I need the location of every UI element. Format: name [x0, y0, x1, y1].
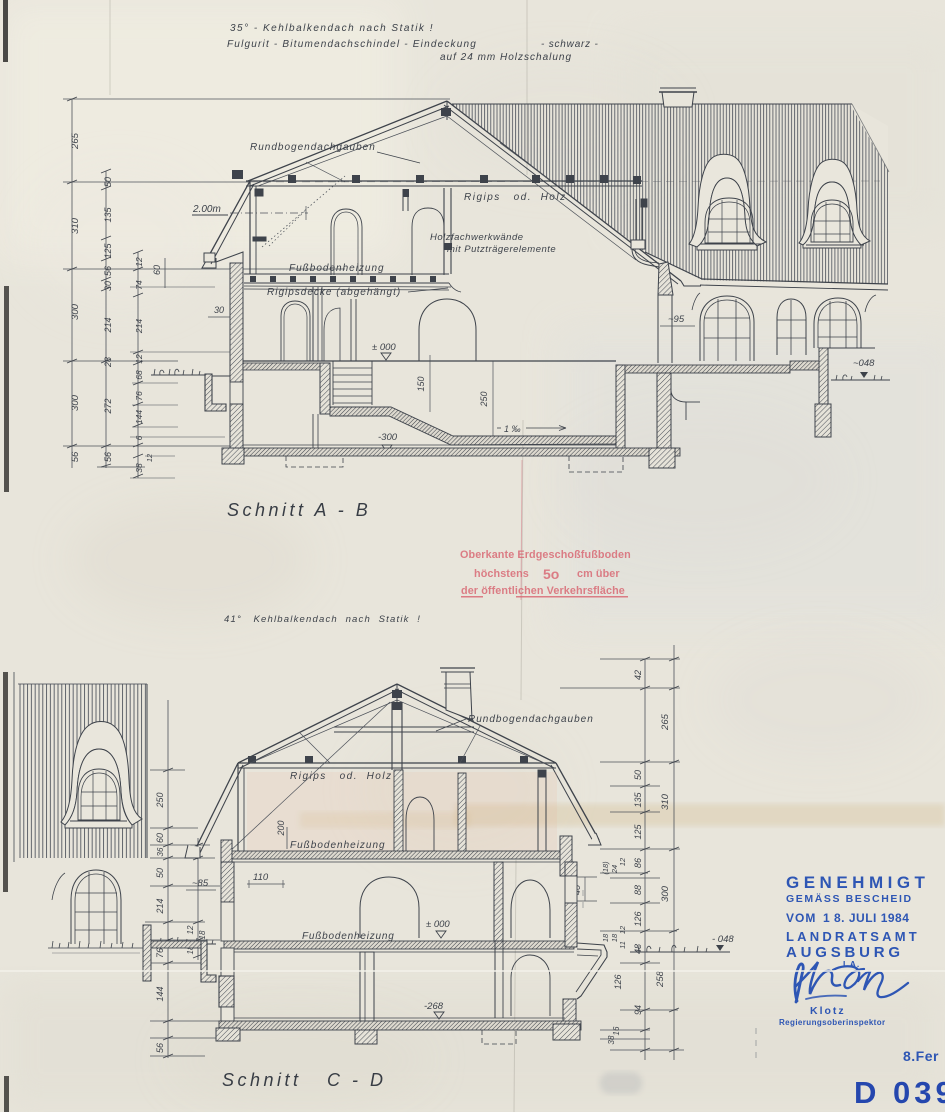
svg-text:Rigipsdecke (abgehängt): Rigipsdecke (abgehängt) — [267, 287, 401, 298]
svg-text:18: 18 — [198, 930, 207, 939]
svg-text:~95: ~95 — [668, 314, 685, 325]
svg-text:42: 42 — [633, 670, 643, 680]
svg-text:auf 24 mm Holzschalung: auf 24 mm Holzschalung — [440, 52, 572, 63]
svg-text:30: 30 — [214, 305, 224, 315]
svg-text:60: 60 — [155, 833, 165, 843]
svg-text:1 ‰: 1 ‰ — [504, 424, 521, 434]
svg-text:Rundbogendachgauben: Rundbogendachgauben — [250, 142, 376, 153]
svg-text:56: 56 — [103, 452, 113, 462]
svg-text:125: 125 — [103, 243, 113, 259]
svg-text:76: 76 — [134, 391, 144, 401]
svg-text:GENEHMIGT: GENEHMIGT — [786, 873, 929, 892]
svg-text:214: 214 — [134, 319, 144, 334]
svg-text:Fußbodenheizung: Fußbodenheizung — [290, 840, 386, 851]
svg-text:300: 300 — [660, 885, 671, 902]
svg-text:2.00m: 2.00m — [192, 204, 221, 215]
svg-text:Oberkante Erdgeschoßfußboden: Oberkante Erdgeschoßfußboden — [460, 549, 631, 561]
svg-text:56: 56 — [103, 266, 113, 276]
svg-text:150: 150 — [416, 376, 426, 391]
svg-text:48: 48 — [633, 944, 643, 954]
svg-text:± 000: ± 000 — [426, 919, 450, 930]
svg-text:VOM: VOM — [786, 911, 816, 925]
svg-text:214: 214 — [103, 317, 113, 333]
svg-text:300: 300 — [70, 394, 81, 411]
svg-text:38: 38 — [134, 463, 144, 473]
svg-text:214: 214 — [155, 898, 165, 914]
svg-text:310: 310 — [660, 793, 671, 810]
svg-text:(18): (18) — [601, 861, 610, 875]
svg-text:1 8. JULI 1984: 1 8. JULI 1984 — [823, 911, 909, 925]
svg-text:Rigips od. Holz: Rigips od. Holz — [464, 192, 567, 203]
svg-text:76: 76 — [155, 948, 165, 958]
svg-text:~85: ~85 — [192, 878, 209, 889]
svg-text:68: 68 — [134, 370, 144, 380]
svg-text:60: 60 — [152, 265, 162, 275]
svg-text:310: 310 — [70, 217, 81, 234]
svg-text:258: 258 — [655, 970, 666, 988]
svg-text:12: 12 — [186, 925, 195, 934]
svg-text:135: 135 — [633, 792, 643, 808]
svg-text:41° Kehlbalkendach nach St: 41° Kehlbalkendach nach Statik ! — [224, 614, 421, 625]
svg-text:12: 12 — [145, 453, 154, 462]
svg-text:86: 86 — [633, 858, 643, 868]
svg-text:88: 88 — [633, 885, 643, 895]
svg-text:5o: 5o — [543, 566, 559, 582]
svg-text:144: 144 — [134, 410, 144, 424]
svg-text:8.Fer: 8.Fer — [903, 1048, 939, 1064]
svg-text:56: 56 — [70, 451, 81, 462]
svg-text:200: 200 — [276, 820, 286, 836]
svg-text:6: 6 — [134, 435, 144, 440]
svg-text:- schwarz -: - schwarz - — [541, 39, 599, 50]
svg-text:cm über: cm über — [577, 568, 620, 580]
svg-text:12: 12 — [618, 925, 627, 934]
svg-text:Klotz: Klotz — [810, 1005, 846, 1017]
svg-text:28: 28 — [103, 357, 113, 368]
svg-text:12: 12 — [134, 354, 144, 364]
svg-text:74: 74 — [134, 280, 144, 290]
svg-text:50: 50 — [633, 770, 643, 780]
svg-text:300: 300 — [70, 303, 81, 320]
svg-text:50: 50 — [103, 177, 113, 187]
svg-text:Rigips od. Holz: Rigips od. Holz — [290, 771, 393, 782]
svg-text:höchstens: höchstens — [474, 568, 529, 580]
svg-text:36: 36 — [156, 847, 165, 856]
svg-text:- 048: - 048 — [712, 934, 734, 945]
svg-text:Rundbogendachgauben: Rundbogendachgauben — [468, 714, 594, 725]
svg-text:D 039: D 039 — [854, 1075, 945, 1110]
svg-text:56: 56 — [155, 1043, 165, 1053]
svg-text:12: 12 — [134, 257, 144, 267]
svg-text:Fußbodenheizung: Fußbodenheizung — [302, 931, 395, 942]
svg-text:125: 125 — [633, 824, 643, 840]
svg-text:Fulgurit - Bitumendachschindel: Fulgurit - Bitumendachschindel - Eindeck… — [227, 39, 477, 50]
svg-text:± 000: ± 000 — [372, 342, 396, 353]
svg-text:Fußbodenheizung: Fußbodenheizung — [289, 263, 385, 274]
svg-text:250: 250 — [479, 391, 489, 407]
svg-text:~048: ~048 — [853, 358, 875, 369]
svg-text:250: 250 — [155, 792, 165, 808]
svg-text:50: 50 — [155, 868, 165, 878]
svg-text:Schnitt A - B: Schnitt A - B — [227, 500, 371, 520]
svg-text:-268: -268 — [424, 1001, 444, 1012]
svg-text:265: 265 — [660, 713, 671, 731]
svg-text:-300: -300 — [378, 432, 398, 443]
svg-text:Regierungsoberinspektor: Regierungsoberinspektor — [779, 1018, 886, 1027]
svg-text:mit Putzträgerelemente: mit Putzträgerelemente — [447, 244, 556, 255]
svg-text:Schnitt C - D: Schnitt C - D — [222, 1070, 387, 1090]
svg-text:11: 11 — [618, 941, 627, 949]
svg-text:126: 126 — [613, 974, 623, 989]
svg-text:30: 30 — [103, 281, 113, 291]
svg-text:Holzfachwerkwände: Holzfachwerkwände — [430, 232, 524, 243]
svg-text:144: 144 — [155, 986, 165, 1001]
svg-text:94: 94 — [633, 1005, 643, 1015]
svg-text:18: 18 — [601, 933, 610, 942]
svg-text:272: 272 — [103, 398, 113, 414]
svg-text:265: 265 — [70, 132, 81, 150]
svg-text:der öffentlichen Verkehrsfläch: der öffentlichen Verkehrsfläche — [461, 585, 625, 597]
svg-text:135: 135 — [103, 207, 113, 223]
svg-text:126: 126 — [633, 911, 643, 926]
svg-text:LANDRATSAMT: LANDRATSAMT — [786, 929, 920, 944]
svg-text:GEMÄSS BESCHEID: GEMÄSS BESCHEID — [786, 892, 913, 905]
svg-text:12: 12 — [618, 857, 627, 866]
svg-text:35° - Kehlbalkendach nach Sta: 35° - Kehlbalkendach nach Statik ! — [230, 23, 434, 34]
svg-text:110: 110 — [253, 872, 269, 883]
svg-text:16: 16 — [612, 1026, 621, 1035]
